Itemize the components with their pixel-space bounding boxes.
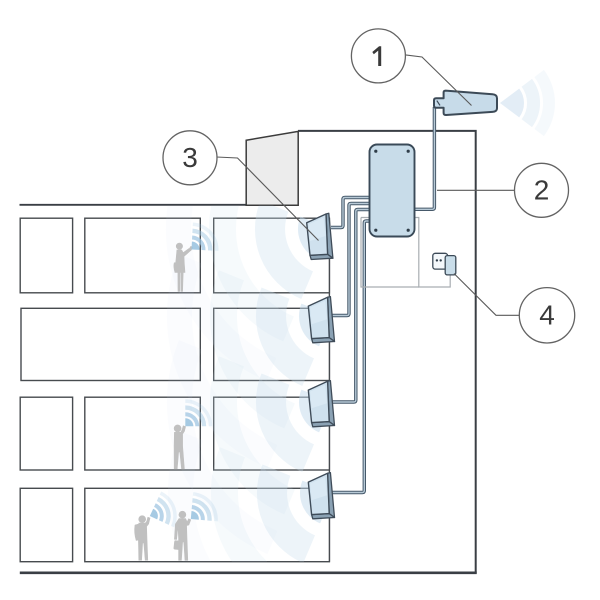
svg-text:4: 4 (539, 300, 555, 331)
svg-text:3: 3 (182, 142, 198, 173)
svg-text:2: 2 (534, 175, 550, 206)
